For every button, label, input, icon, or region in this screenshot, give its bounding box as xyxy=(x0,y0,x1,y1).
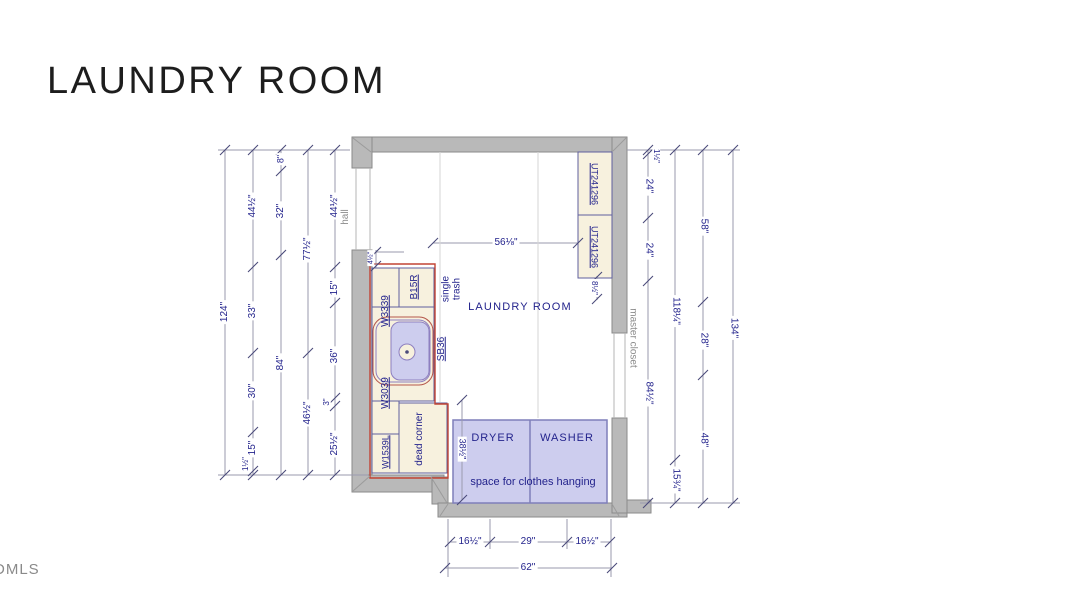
dim-25half: 25½" xyxy=(330,430,341,457)
dim-44half-left: 44½" xyxy=(248,192,259,219)
dim-16half-left: 16½" xyxy=(456,537,483,548)
wall-right-upper xyxy=(612,137,627,333)
master-closet-label: master closet xyxy=(627,308,638,367)
dim-118quarter: 118¼" xyxy=(670,295,681,327)
hall-label: hall xyxy=(341,209,352,225)
hanging-space-label: space for clothes hanging xyxy=(470,477,595,489)
dim-4half: 4½" xyxy=(367,250,374,266)
dim-1half-right: 1½" xyxy=(652,147,660,165)
dim-29: 29" xyxy=(519,537,538,548)
dim-24-lower: 24" xyxy=(643,241,654,260)
dim-38half: 38½" xyxy=(457,437,466,462)
cabinet-label-w3039: W3039 xyxy=(381,377,392,409)
dim-44half-hall: 44½" xyxy=(330,192,341,219)
dim-8half: 8½" xyxy=(590,279,598,297)
cabinet-label-ut241296-lower: UT241296 xyxy=(589,226,598,268)
dim-56eighth: 56⅛" xyxy=(492,238,519,249)
wall-bottom xyxy=(438,503,627,517)
floor-plan-page: LAUNDRY ROOM 124"44½"33"30"15"1½"8"32"84… xyxy=(0,0,1067,600)
wall-stub-right xyxy=(627,500,651,513)
cabinet-label-w3339: W3339 xyxy=(381,295,392,327)
dim-8: 8" xyxy=(276,153,285,165)
wall-left xyxy=(352,250,372,492)
dim-84half: 84½" xyxy=(643,379,654,406)
room-label: LAUNDRY ROOM xyxy=(468,302,572,314)
dryer-label: DRYER xyxy=(471,433,514,445)
dim-84: 84" xyxy=(276,354,287,373)
dead-corner-label: dead corner xyxy=(415,412,426,465)
dim-15threequarter: 15¾" xyxy=(670,466,681,493)
dim-1half-left: 1½" xyxy=(242,455,250,473)
dim-58: 58" xyxy=(698,217,709,236)
dim-33: 33" xyxy=(248,302,259,321)
dim-77half: 77½" xyxy=(303,235,314,262)
floor-plan-drawing xyxy=(0,0,1067,600)
dim-30: 30" xyxy=(248,382,259,401)
dim-36: 36" xyxy=(330,347,341,366)
washer-label: WASHER xyxy=(540,433,594,445)
watermark-logo: DMLS xyxy=(0,561,40,578)
cabinet-label-ut241296-upper: UT241296 xyxy=(589,163,598,205)
dim-48: 48" xyxy=(698,431,709,450)
dim-62: 62" xyxy=(519,563,538,574)
dim-134: 134" xyxy=(728,316,739,340)
sink-drain-dot xyxy=(405,350,409,354)
dim-46half: 46½" xyxy=(303,399,314,426)
dim-15-wall: 15" xyxy=(330,279,341,298)
cabinet-label-w1539l: W1539L xyxy=(381,435,390,469)
dim-124: 124" xyxy=(220,300,231,324)
dim-3: 3" xyxy=(323,396,331,407)
dim-32: 32" xyxy=(276,202,287,221)
single-trash-label: single trash xyxy=(442,276,463,302)
dim-28: 28" xyxy=(698,331,709,350)
wall-top xyxy=(352,137,627,152)
cabinet-label-b15r: B15R xyxy=(410,274,421,299)
wall-right-lower xyxy=(612,418,627,513)
dim-16half-right: 16½" xyxy=(573,537,600,548)
wall-left-upper xyxy=(352,137,372,168)
cabinet-label-sb36: SB36 xyxy=(437,337,448,361)
dim-24-upper: 24" xyxy=(643,177,654,196)
